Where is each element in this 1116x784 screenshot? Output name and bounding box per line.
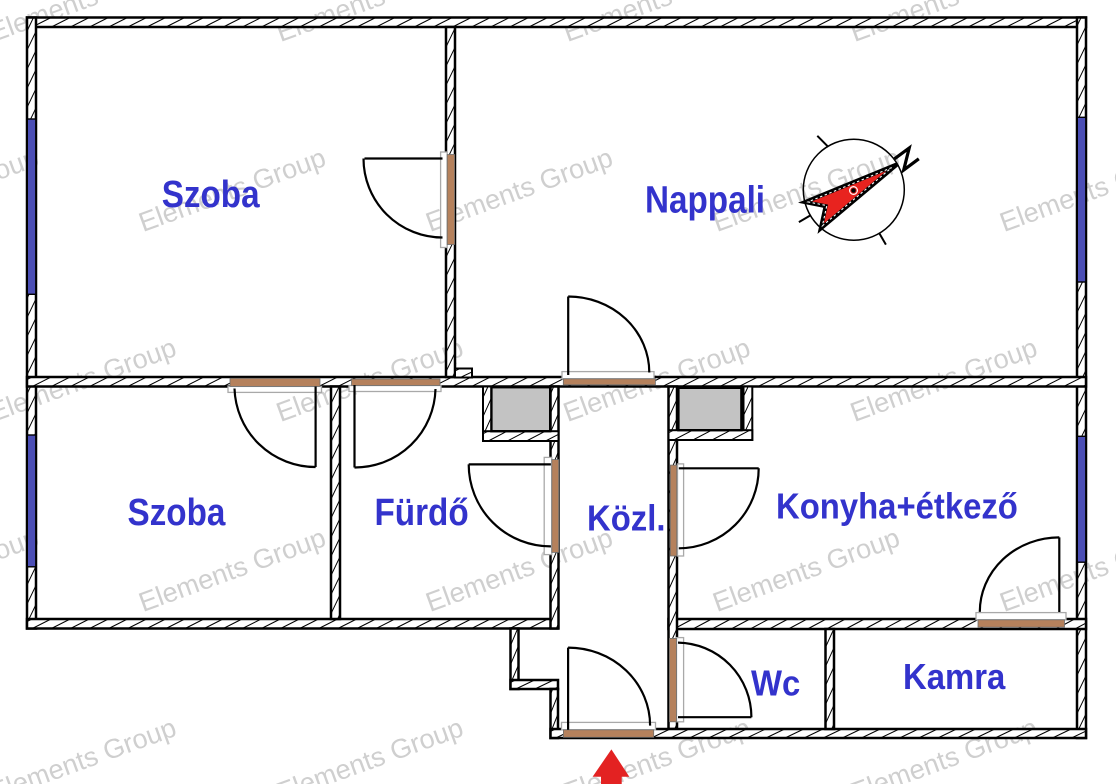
svg-text:Wc: Wc [751, 664, 800, 704]
svg-text:Szoba: Szoba [162, 173, 261, 216]
svg-text:Nappali: Nappali [645, 179, 765, 222]
svg-text:Szoba: Szoba [128, 491, 227, 534]
svg-text:Közl.: Közl. [587, 499, 665, 539]
svg-text:Kamra: Kamra [903, 657, 1006, 697]
svg-text:Konyha+étkező: Konyha+étkező [776, 487, 1018, 527]
svg-text:Fürdő: Fürdő [375, 491, 469, 534]
